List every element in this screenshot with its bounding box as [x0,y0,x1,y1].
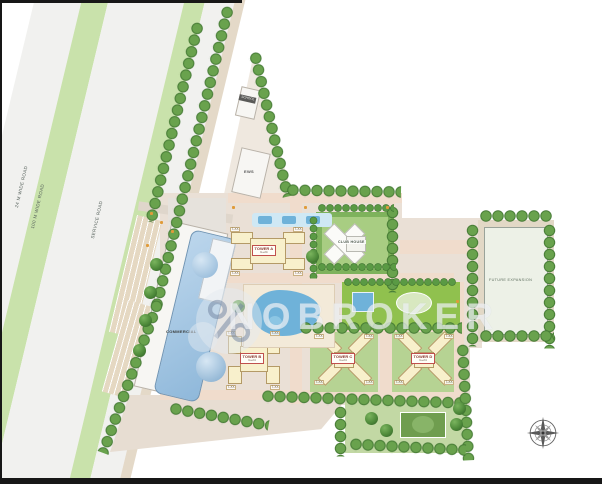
tower-c-floors: G+24 [334,359,353,362]
ews-label: EWS [244,169,254,174]
gate-marker [304,206,307,209]
sports-court-oval [412,416,434,433]
gate-marker [171,230,174,233]
tree-row [318,204,394,213]
tree [133,344,146,357]
tower-a-label: TOWER A G+24 [252,245,276,256]
tower-a-wing [283,258,305,270]
gate-marker [146,244,149,247]
gate-marker [150,212,153,215]
scan-border-left [0,0,2,480]
tree-row [318,263,396,272]
tower-d-label: TOWER D G+24 [411,353,435,364]
tower-b-floors: G+24 [243,359,262,362]
tower-a-wing-tag: T-XX [293,227,303,232]
tree-row [480,210,552,223]
tower-a-wing [283,232,305,244]
tower-d-floors: G+24 [414,359,433,362]
scan-border-top [0,0,242,3]
tower-c-label: TOWER C G+24 [331,353,355,364]
clubhouse-label: CLUB HOUSE [337,240,366,244]
tower-d-wing-tag: T-XX [394,380,404,385]
tower-c-wing-tag: T-XX [314,380,324,385]
tree [150,258,163,271]
compass-rose-icon [524,414,562,452]
future-expansion-label: FUTURE EXPANSION [489,278,532,282]
gate-marker [386,206,389,209]
scan-border-bottom [0,478,602,484]
gate-marker [232,206,235,209]
tower-b-wing-tag: T-XX [226,385,236,390]
tower-a-wing-tag: T-XX [293,271,303,276]
tree-row [309,217,318,279]
tree-row [287,184,401,199]
tree-row [334,407,347,457]
tower-c-wing-tag: T-XX [364,380,374,385]
tree [306,250,319,263]
tower-b-wing-tag: T-XX [270,385,280,390]
commercial-glass-drum [196,352,226,382]
watermark-text: NOBROKER [228,296,500,338]
site-plan-canvas: 24 M WIDE ROAD 100 M WIDE ROAD SERVICE R… [0,0,602,484]
water-feature-basin [282,216,296,224]
tower-d-wing-tag: T-XX [444,380,454,385]
commercial-glass-drum [192,252,218,278]
watermark-logo-small [188,322,218,352]
water-feature-basin [258,216,272,224]
tower-a-floors: G+24 [255,251,274,254]
tower-a-wing-tag: T-XX [230,271,240,276]
tree [144,286,157,299]
tower-a-wing-tag: T-XX [230,227,240,232]
tree [380,424,393,437]
tree [365,412,378,425]
tower-b-label: TOWER B G+24 [240,353,264,364]
tower-b-wing [266,366,280,384]
gate-marker [160,221,163,224]
tree-row [344,278,456,287]
tree [453,402,466,415]
tree [139,314,152,327]
tree [450,418,463,431]
clubhouse-core [346,236,366,252]
